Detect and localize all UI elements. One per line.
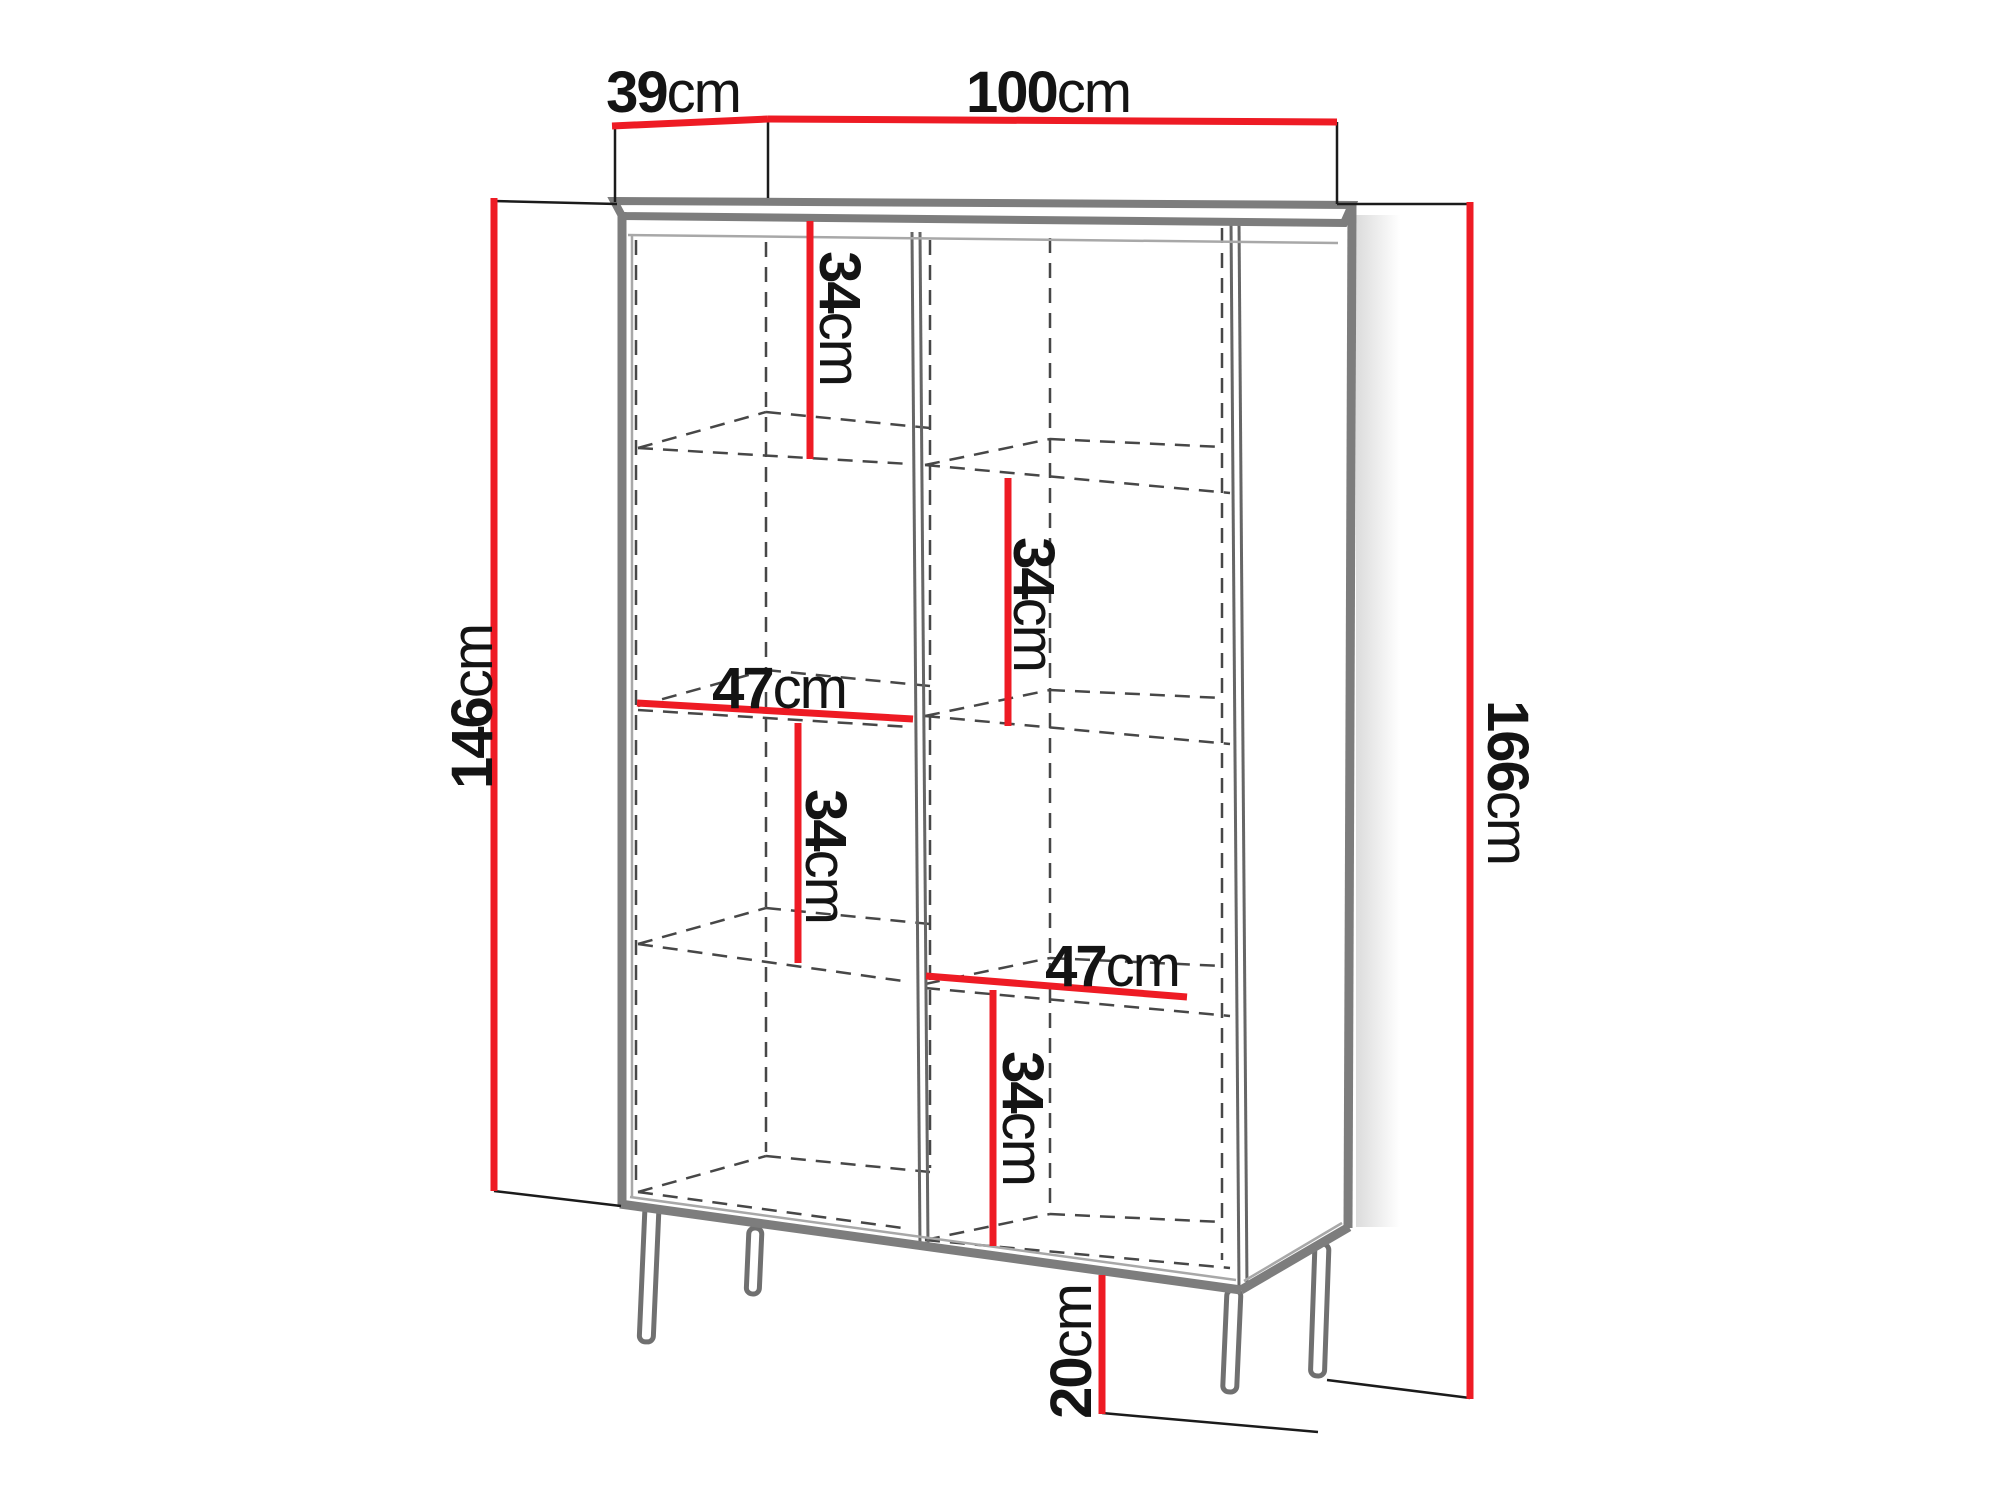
leg-front-left (639, 1207, 659, 1342)
leg-back-right (1310, 1244, 1329, 1376)
cabinet-right-side-face (1231, 222, 1348, 1290)
leg-front-right (1223, 1290, 1241, 1393)
cabinet-right-edge (1348, 203, 1352, 1228)
dim-label-right-inner-width: 47cm (1045, 934, 1179, 999)
dim-label-right-upper-gap: 34cm (1001, 537, 1066, 671)
dim-label-total-height: 166cm (1475, 700, 1540, 864)
dim-label-leg-height: 20cm (1039, 1285, 1104, 1419)
dim-label-carcass-height: 146cm (440, 625, 505, 789)
leg-back-left (746, 1228, 762, 1295)
dim-label-left-top-gap: 34cm (807, 251, 872, 385)
dim-label-left-inner-width: 47cm (712, 656, 846, 721)
dim-label-right-lower-gap: 34cm (990, 1051, 1055, 1185)
cabinet-side-shadow (1356, 215, 1400, 1227)
dim-label-width: 100cm (966, 60, 1130, 125)
cabinet-top-face (614, 201, 1352, 223)
dim-label-depth: 39cm (606, 60, 740, 125)
furniture-dimension-diagram: 39cm 100cm 146cm 166cm 34cm 34cm 47cm 34… (0, 0, 2000, 1500)
diagram-canvas: 39cm 100cm 146cm 166cm 34cm 34cm 47cm 34… (0, 0, 2000, 1500)
dim-label-left-lower-gap: 34cm (793, 789, 858, 923)
